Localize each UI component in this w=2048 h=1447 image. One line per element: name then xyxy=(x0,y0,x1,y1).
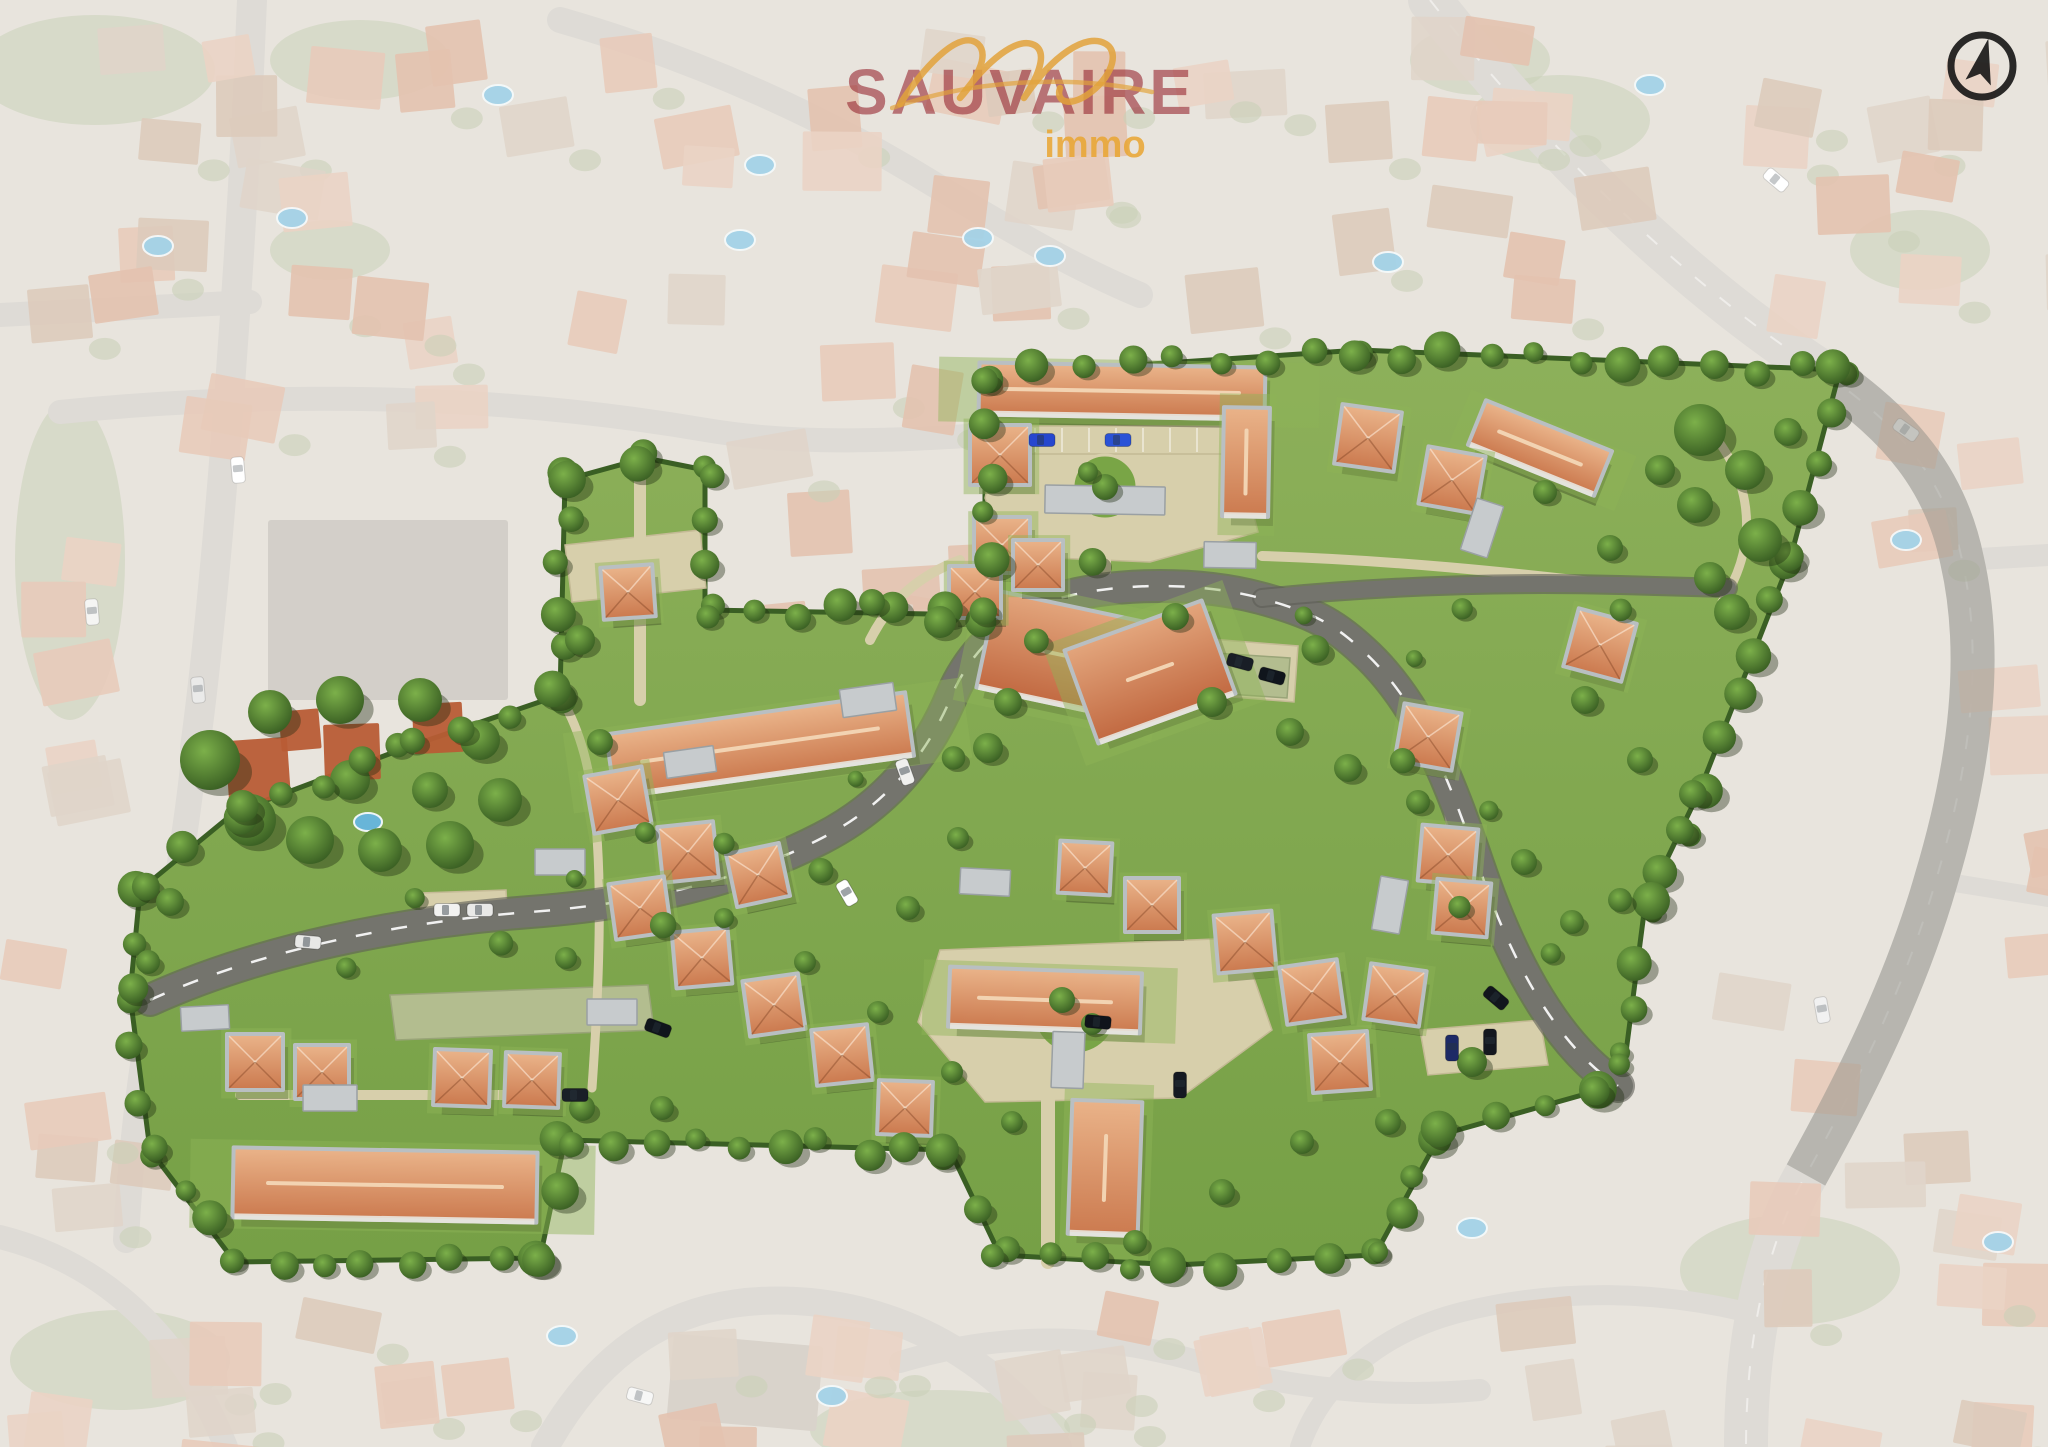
house-roof xyxy=(1008,535,1070,599)
house-roof xyxy=(1052,835,1120,905)
house-roof xyxy=(1120,873,1188,942)
masterplan-aerial-visual: mc SAUVAIRE immo xyxy=(0,0,2048,1447)
house-roof xyxy=(1303,1024,1381,1102)
house-roof xyxy=(805,1018,882,1096)
house-roof xyxy=(221,1028,291,1099)
house-roof xyxy=(1356,957,1435,1037)
aerial-site-plan xyxy=(0,0,2048,1447)
house-roof xyxy=(1326,397,1411,482)
residence-building xyxy=(1217,393,1276,536)
house-roof xyxy=(1272,952,1354,1035)
house-roof xyxy=(736,966,815,1046)
house-roof xyxy=(595,559,664,630)
compass-north-icon xyxy=(1942,26,2022,106)
residence-building xyxy=(189,1139,595,1235)
house-roof xyxy=(427,1043,500,1116)
house-roof xyxy=(498,1046,568,1117)
